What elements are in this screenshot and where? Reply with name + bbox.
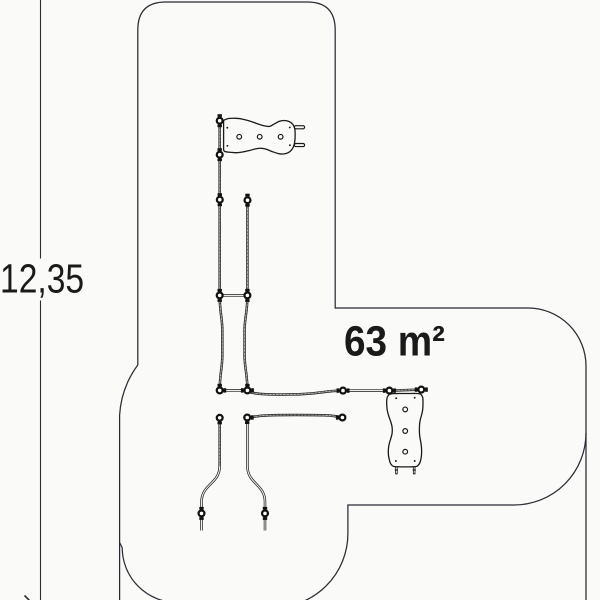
svg-text:63 m²: 63 m²: [344, 317, 445, 365]
svg-text:12,35: 12,35: [0, 256, 84, 302]
